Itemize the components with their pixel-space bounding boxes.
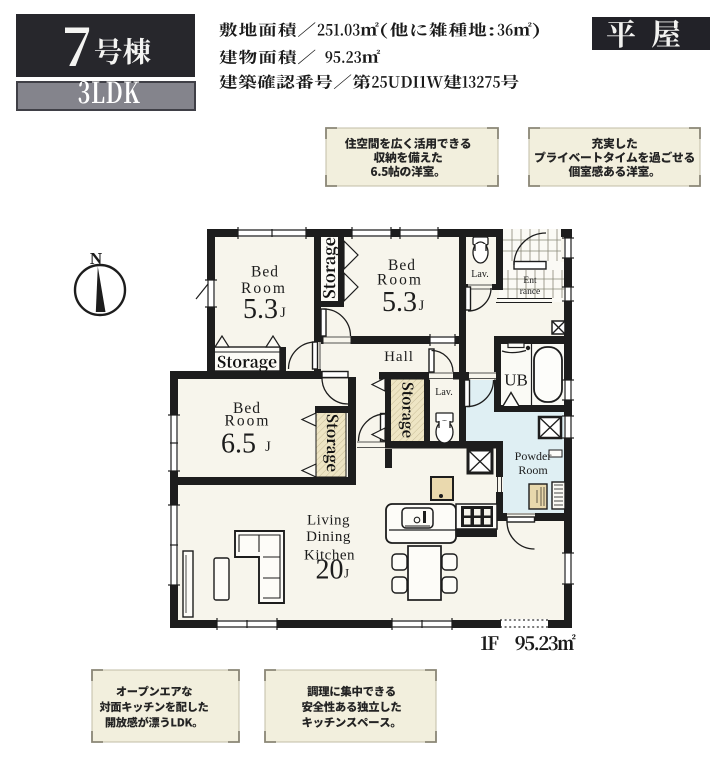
svg-text:J: J [280,305,286,321]
svg-text:J: J [419,298,425,314]
svg-text:N: N [90,249,103,268]
svg-text:5.3: 5.3 [243,294,278,325]
svg-text:Lav.: Lav. [435,387,452,398]
svg-text:6.5: 6.5 [221,429,256,460]
svg-text:20: 20 [316,555,344,586]
svg-text:Room: Room [377,272,423,289]
svg-text:UB: UB [504,371,528,390]
svg-text:Powder: Powder [515,449,552,463]
svg-text:5.3: 5.3 [382,287,417,318]
svg-text:Ent: Ent [523,276,537,286]
svg-text:Living: Living [307,513,350,529]
svg-text:Hall: Hall [384,349,414,365]
svg-text:Dining: Dining [306,529,351,545]
svg-text:J: J [344,566,349,581]
svg-text:Room: Room [518,463,548,477]
svg-text:Lav.: Lav. [471,269,488,280]
svg-text:J: J [265,439,271,455]
svg-text:Bed: Bed [251,264,279,281]
svg-text:rance: rance [520,287,541,297]
svg-text:Room: Room [225,413,271,430]
